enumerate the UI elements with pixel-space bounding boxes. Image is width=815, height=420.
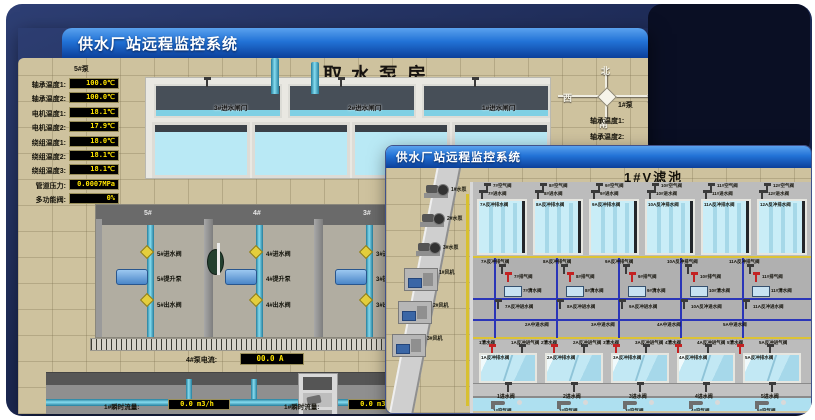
cell-stripe bbox=[713, 203, 717, 253]
backwash-inlet-valve-icon[interactable] bbox=[559, 302, 561, 309]
water-pump-label: 1#水泵 bbox=[451, 186, 467, 193]
gate-valve-icon[interactable] bbox=[206, 80, 208, 87]
gate-valve-label: 2#进水闸门 bbox=[348, 102, 381, 112]
inlet-valve-label: 8#进水阀 bbox=[544, 191, 563, 197]
side-panel-label: 轴承温度2: bbox=[590, 132, 624, 142]
inlet-valve-label: 9#进水阀 bbox=[600, 191, 619, 197]
gallery-valve-icon[interactable] bbox=[687, 267, 689, 274]
air-release-valve-label: 7#排气阀 bbox=[514, 274, 533, 280]
gate-valve-label: 3#进水闸门 bbox=[214, 102, 247, 112]
clean-water-valve-label: 10#清水阀 bbox=[709, 288, 730, 294]
green-tank-icon bbox=[207, 249, 224, 275]
intake-gate-cell bbox=[422, 84, 550, 118]
gallery-valve-icon[interactable] bbox=[749, 267, 751, 274]
bay-pipe-icon bbox=[147, 225, 154, 337]
white-pipe-icon bbox=[217, 243, 220, 275]
panel-row-label: 多功能阀: bbox=[22, 195, 66, 205]
blue-pipe-icon bbox=[473, 319, 811, 321]
cell-stripe bbox=[669, 203, 673, 253]
platform-bottom-strip bbox=[473, 411, 811, 413]
backwash-inlet-valve-icon[interactable] bbox=[745, 302, 747, 309]
air-release-valve-icon[interactable] bbox=[569, 275, 571, 282]
front-inlet-valve-icon[interactable] bbox=[705, 385, 707, 392]
pump-fan-icon bbox=[429, 242, 441, 254]
float-ball-icon bbox=[781, 400, 786, 405]
blower-unit[interactable] bbox=[404, 268, 438, 291]
air-release-valve-label: 9#排气阀 bbox=[638, 274, 657, 280]
blue-pipe-icon bbox=[556, 258, 558, 338]
cell-stripe bbox=[489, 203, 493, 253]
cell-dark-edge bbox=[746, 201, 749, 253]
backwash-inlet-valve-label: 10A反冲进水阀 bbox=[691, 304, 722, 310]
panel-value-display: 100.0℃ bbox=[69, 92, 119, 103]
cell-stripe bbox=[501, 203, 505, 253]
front-inlet-valve-label: 2进水阀 bbox=[563, 393, 581, 400]
front-inlet-valve-icon[interactable] bbox=[639, 385, 641, 392]
air-valve-label: 10#空气阀 bbox=[661, 183, 682, 189]
backwash-drain-label: 12A反冲排水阀 bbox=[760, 202, 791, 208]
panel-row-label: 管道压力: bbox=[22, 181, 66, 191]
cell-stripe bbox=[681, 203, 685, 253]
cell-dark-edge bbox=[578, 201, 581, 253]
blue-pipe-icon bbox=[473, 298, 811, 300]
air-release-valve-icon[interactable] bbox=[631, 275, 633, 282]
lift-pump-label: 4#提升泵 bbox=[266, 274, 291, 283]
cell-stripe bbox=[769, 203, 773, 253]
cell-stripe bbox=[613, 203, 617, 253]
front-inlet-valve-label: 4进水阀 bbox=[695, 393, 713, 400]
blower-unit[interactable] bbox=[392, 334, 426, 357]
intake-channel-cell bbox=[252, 122, 350, 178]
standpipe-icon bbox=[311, 62, 319, 94]
cell-stripe bbox=[737, 203, 741, 253]
clean-water-valve-box[interactable] bbox=[752, 286, 770, 297]
filter-platform: 7#空气阀7#进水阀7A反冲排水阀8#空气阀8#进水阀8A反冲排水阀9#空气阀9… bbox=[470, 182, 811, 413]
mid-pipe-label: 4A中进水阀 bbox=[657, 322, 681, 328]
air-release-valve-label: 10#排气阀 bbox=[700, 274, 721, 280]
front-backwash-drain-label: 4A反冲排水阀 bbox=[679, 355, 707, 361]
clean-water-valve-box[interactable] bbox=[690, 286, 708, 297]
float-ball-icon bbox=[715, 400, 720, 405]
cell-stripe bbox=[557, 203, 561, 253]
panel-row-label: 绕组温度3: bbox=[22, 166, 66, 176]
panel-value-display: 18.1℃ bbox=[69, 150, 119, 161]
air-release-valve-icon[interactable] bbox=[507, 275, 509, 282]
gallery-valve-icon[interactable] bbox=[501, 267, 503, 274]
clean-water-valve-label: 11#清水阀 bbox=[771, 288, 792, 294]
clean-water-valve-label: 7#清水阀 bbox=[523, 288, 542, 294]
clean-water-valve-label: 9#清水阀 bbox=[647, 288, 666, 294]
float-ball-icon bbox=[583, 400, 588, 405]
gallery-valve-icon[interactable] bbox=[563, 267, 565, 274]
float-ball-icon bbox=[649, 400, 654, 405]
inlet-valve-label: 11#进水阀 bbox=[712, 191, 733, 197]
standpipe-icon bbox=[271, 58, 279, 94]
bay-pipe-icon bbox=[366, 225, 373, 337]
panel-value-display: 100.0℃ bbox=[69, 78, 119, 89]
inlet-valve-label: 7#进水阀 bbox=[488, 191, 507, 197]
clean-water-valve-box[interactable] bbox=[628, 286, 646, 297]
hall-divider-wall bbox=[204, 219, 213, 337]
mid-pipe-label: 5A中进水阀 bbox=[723, 322, 747, 328]
lift-pump-icon[interactable] bbox=[116, 269, 148, 285]
float-ball-icon bbox=[517, 400, 522, 405]
air-valve-label: 9#空气阀 bbox=[605, 183, 624, 189]
bay-number-label: 3# bbox=[363, 210, 371, 217]
front-backwash-drain-label: 2A反冲排水阀 bbox=[547, 355, 575, 361]
clean-water-valve-box[interactable] bbox=[566, 286, 584, 297]
outlet-valve-label: 4#出水阀 bbox=[266, 300, 291, 309]
compass-west-label: 西 bbox=[563, 91, 572, 104]
mid-pipe-label: 3A中进水阀 bbox=[591, 322, 615, 328]
cell-stripe bbox=[725, 203, 729, 253]
cell-stripe bbox=[513, 203, 517, 253]
water-pump-label: 2#水泵 bbox=[447, 215, 463, 222]
backwash-drain-label: 11A反冲排水阀 bbox=[704, 202, 735, 208]
cell-stripe bbox=[545, 203, 549, 253]
blower-panel bbox=[411, 339, 421, 352]
inlet-valve-label: 12#进水阀 bbox=[768, 191, 789, 197]
cell-dark-edge bbox=[690, 201, 693, 253]
intake-gate-cell bbox=[288, 84, 416, 118]
flow-meter-label: 1#瞬时流量: bbox=[104, 401, 139, 411]
front-backwash-drain-label: 3A反冲排水阀 bbox=[613, 355, 641, 361]
clean-water-valve-box[interactable] bbox=[504, 286, 522, 297]
channel-dark-edge bbox=[155, 125, 247, 132]
back-window-title: 供水厂站远程监控系统 bbox=[78, 33, 238, 54]
blower-motor-icon bbox=[402, 311, 416, 321]
panel-value-display: 18.1℃ bbox=[69, 164, 119, 175]
front-inlet-valve-icon[interactable] bbox=[771, 385, 773, 392]
front-window-titlebar[interactable]: 供水厂站远程监控系统 bbox=[386, 146, 811, 168]
air-release-valve-label: 11#排气阀 bbox=[762, 274, 783, 280]
panel-row-label: 轴承温度1: bbox=[22, 80, 66, 90]
backwash-drain-label: 7A反冲排水阀 bbox=[480, 202, 508, 208]
air-valve-label: 11#空气阀 bbox=[717, 183, 738, 189]
back-window-titlebar[interactable]: 供水厂站远程监控系统 bbox=[62, 28, 648, 58]
blower-panel bbox=[417, 306, 427, 319]
pump-fan-icon bbox=[437, 184, 449, 196]
main-background-panel: 供水厂站远程监控系统 取水泵房 5#泵 轴承温度1:100.0℃轴承温度2:10… bbox=[6, 4, 812, 416]
panel-row-label: 绕组温度1: bbox=[22, 138, 66, 148]
blue-pipe-icon bbox=[494, 258, 496, 338]
flow-meter-display: 0.0 m3/h bbox=[168, 399, 230, 410]
front-inlet-valve-label: 3进水阀 bbox=[629, 393, 647, 400]
flow-meter-label: 1#瞬时流量: bbox=[284, 401, 319, 411]
blower-label: 2#风机 bbox=[433, 302, 449, 309]
backwash-inlet-valve-label: 9A反冲进水阀 bbox=[629, 304, 657, 310]
backwash-inlet-valve-icon[interactable] bbox=[683, 302, 685, 309]
yellow-rail-icon bbox=[473, 337, 811, 339]
cell-dark-edge bbox=[522, 201, 525, 253]
intake-channel-cell bbox=[152, 122, 250, 178]
backwash-air-valve-label: 10A反冲排气阀 bbox=[667, 259, 698, 265]
gate-valve-icon[interactable] bbox=[340, 80, 342, 87]
front-inlet-valve-label: 5进水阀 bbox=[761, 393, 779, 400]
front-inlet-valve-icon[interactable] bbox=[507, 385, 509, 392]
air-valve-label: 8#空气阀 bbox=[549, 183, 568, 189]
channel-dark-edge bbox=[455, 125, 547, 132]
mid-pipe-label: 2A中进水阀 bbox=[525, 322, 549, 328]
lift-pump-icon[interactable] bbox=[335, 269, 367, 285]
air-release-valve-label: 8#排气阀 bbox=[576, 274, 595, 280]
panel-row-label: 轴承温度2: bbox=[22, 94, 66, 104]
air-release-valve-icon[interactable] bbox=[755, 275, 757, 282]
compass-north-label: 北 bbox=[601, 64, 610, 77]
front-window-title: 供水厂站远程监控系统 bbox=[396, 149, 521, 165]
front-inlet-valve-label: 1进水阀 bbox=[497, 393, 515, 400]
cell-stripe bbox=[793, 203, 797, 253]
water-pump-unit[interactable] bbox=[416, 242, 440, 256]
water-pump-label: 3#水泵 bbox=[443, 244, 459, 251]
pump-current-label: 4#泵电流: bbox=[186, 355, 217, 365]
blower-label: 1#风机 bbox=[439, 269, 455, 276]
inlet-valve-label: 10#进水阀 bbox=[656, 191, 677, 197]
backwash-inlet-valve-label: 8A反冲进水阀 bbox=[567, 304, 595, 310]
lower-red-valve-icon[interactable] bbox=[739, 347, 741, 354]
backwash-drain-label: 9A反冲排水阀 bbox=[592, 202, 620, 208]
blower-unit[interactable] bbox=[398, 301, 432, 324]
blower-motor-icon bbox=[408, 278, 422, 288]
backwash-inlet-valve-label: 7A反冲进水阀 bbox=[505, 304, 533, 310]
cell-stripe bbox=[657, 203, 661, 253]
clean-water-valve-label: 8#清水阀 bbox=[585, 288, 604, 294]
background-dark-panel bbox=[648, 4, 810, 154]
cell-stripe bbox=[569, 203, 573, 253]
intake-gate-cell bbox=[154, 84, 282, 118]
gate-valve-icon[interactable] bbox=[474, 80, 476, 87]
front-inlet-valve-icon[interactable] bbox=[573, 385, 575, 392]
air-valve-label: 12#空气阀 bbox=[773, 183, 794, 189]
front-backwash-drain-label: 5A反冲排水阀 bbox=[745, 355, 773, 361]
backwash-inlet-valve-label: 11A反冲进水阀 bbox=[753, 304, 784, 310]
panel-value-display: 17.9℃ bbox=[69, 121, 119, 132]
channel-dark-edge bbox=[355, 125, 447, 132]
gate-valve-label: 1#进水闸门 bbox=[482, 102, 515, 112]
panel-value-display: 18.0℃ bbox=[69, 136, 119, 147]
pump5-panel-header: 5#泵 bbox=[74, 66, 89, 73]
backwash-air-valve-label: 11A反冲排气阀 bbox=[729, 259, 760, 265]
pump-current-display: 00.0 A bbox=[240, 353, 304, 365]
backwash-inlet-valve-icon[interactable] bbox=[497, 302, 499, 309]
hall-divider-wall bbox=[314, 219, 323, 337]
yellow-rail-icon bbox=[473, 256, 811, 258]
air-release-valve-icon[interactable] bbox=[693, 275, 695, 282]
filter-pool-window: 供水厂站远程监控系统 1#V滤池 1#水泵2#水泵3#水泵1#风机2#风机3#风… bbox=[385, 145, 812, 414]
panel-row-label: 电机温度2: bbox=[22, 123, 66, 133]
pump1-panel-header: 1#泵 bbox=[618, 100, 633, 110]
water-pump-unit[interactable] bbox=[424, 184, 448, 198]
backwash-inlet-valve-icon[interactable] bbox=[621, 302, 623, 309]
hall-left-wall bbox=[96, 219, 102, 337]
blower-panel bbox=[423, 273, 433, 286]
bay-number-label: 4# bbox=[253, 210, 261, 217]
water-pump-unit[interactable] bbox=[420, 213, 444, 227]
front-backwash-drain-label: 1A反冲排水阀 bbox=[481, 355, 509, 361]
outlet-valve-label: 5#出水阀 bbox=[157, 300, 182, 309]
cell-dark-edge bbox=[802, 201, 805, 253]
channel-dark-edge bbox=[255, 125, 347, 132]
panel-value-display: 0.0007MPa bbox=[69, 179, 119, 190]
gallery-valve-icon[interactable] bbox=[625, 267, 627, 274]
inlet-valve-label: 5#进水阀 bbox=[157, 249, 182, 258]
cell-stripe bbox=[601, 203, 605, 253]
backwash-drain-label: 8A反冲排水阀 bbox=[536, 202, 564, 208]
blower-label: 3#风机 bbox=[427, 335, 443, 342]
air-valve-label: 7#空气阀 bbox=[493, 183, 512, 189]
blower-motor-icon bbox=[396, 344, 410, 354]
panel-row-label: 电机温度1: bbox=[22, 109, 66, 119]
filter-pool-scene: 1#V滤池 1#水泵2#水泵3#水泵1#风机2#风机3#风机 7#空气阀7#进水… bbox=[386, 168, 811, 413]
bay-number-label: 5# bbox=[144, 210, 152, 217]
bay-pipe-icon bbox=[256, 225, 263, 337]
cabinet-panel bbox=[303, 377, 332, 390]
backwash-drain-label: 10A反冲排水阀 bbox=[648, 202, 679, 208]
lift-pump-icon[interactable] bbox=[225, 269, 257, 285]
cell-dark-edge bbox=[634, 201, 637, 253]
side-panel-label: 轴承温度1: bbox=[590, 116, 624, 126]
panel-value-display: 0% bbox=[69, 193, 119, 204]
cell-stripe bbox=[781, 203, 785, 253]
panel-value-display: 18.1℃ bbox=[69, 107, 119, 118]
cell-stripe bbox=[625, 203, 629, 253]
panel-row-label: 绕组温度2: bbox=[22, 152, 66, 162]
blower-pump-units: 1#水泵2#水泵3#水泵1#风机2#风机3#风机 bbox=[386, 168, 478, 413]
inlet-valve-label: 4#进水阀 bbox=[266, 249, 291, 258]
lift-pump-label: 5#提升泵 bbox=[157, 274, 182, 283]
blue-pipe-icon bbox=[618, 258, 620, 338]
pump-fan-icon bbox=[433, 213, 445, 225]
